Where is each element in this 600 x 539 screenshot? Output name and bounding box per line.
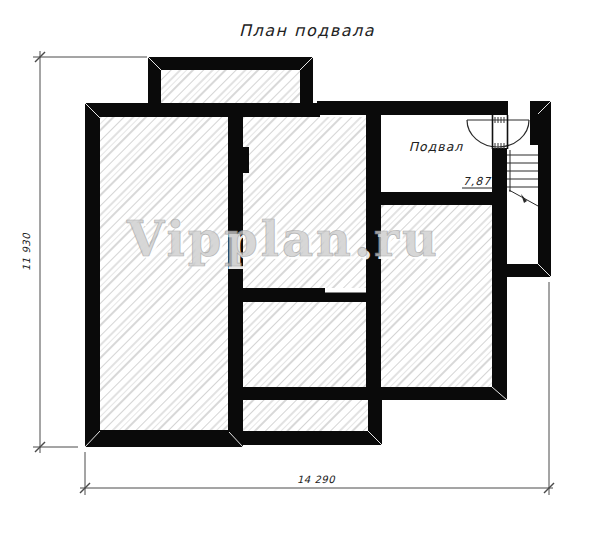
- room-middle-bottom: [243, 400, 368, 431]
- wall-bottom-middle: [228, 431, 382, 445]
- watermark-text: Vipplan.ru: [126, 211, 440, 267]
- room-middle-center: [243, 302, 366, 387]
- floor-plan-page: Vipplan.ru Vipplan.ru План подвала Подва…: [0, 0, 600, 539]
- dimension-width-label: 14 290: [297, 474, 336, 485]
- wall-bumpout-top: [148, 57, 313, 70]
- wall-top-main: [85, 103, 320, 117]
- wall-left-outer: [85, 103, 100, 447]
- basement-room-label: Подвал: [409, 139, 464, 154]
- door-swing-arc-icon: [467, 120, 529, 147]
- wall-pilaster: [228, 147, 249, 173]
- wall-bumpout-right: [300, 57, 313, 117]
- stair-direction-arrow-icon: [521, 194, 527, 203]
- watermark: Vipplan.ru Vipplan.ru: [126, 211, 443, 270]
- wall-divider-step-notch: [325, 288, 366, 293]
- dimension-height-label: 11 930: [21, 232, 32, 271]
- wall-right-outer: [492, 148, 507, 400]
- wall-bottom-left: [85, 430, 243, 447]
- wall-top-right-section: [317, 101, 508, 115]
- wall-stair-right: [538, 101, 551, 277]
- door-swing: [467, 115, 529, 149]
- wall-basement-room-bottom: [366, 192, 492, 205]
- page-title: План подвала: [239, 21, 375, 40]
- basement-area-value: 7,87: [463, 175, 492, 188]
- room-bumpout: [161, 70, 300, 103]
- staircase: [507, 150, 538, 206]
- floor-plan-canvas: Vipplan.ru Vipplan.ru План подвала Подва…: [0, 0, 600, 539]
- room-left: [100, 117, 228, 430]
